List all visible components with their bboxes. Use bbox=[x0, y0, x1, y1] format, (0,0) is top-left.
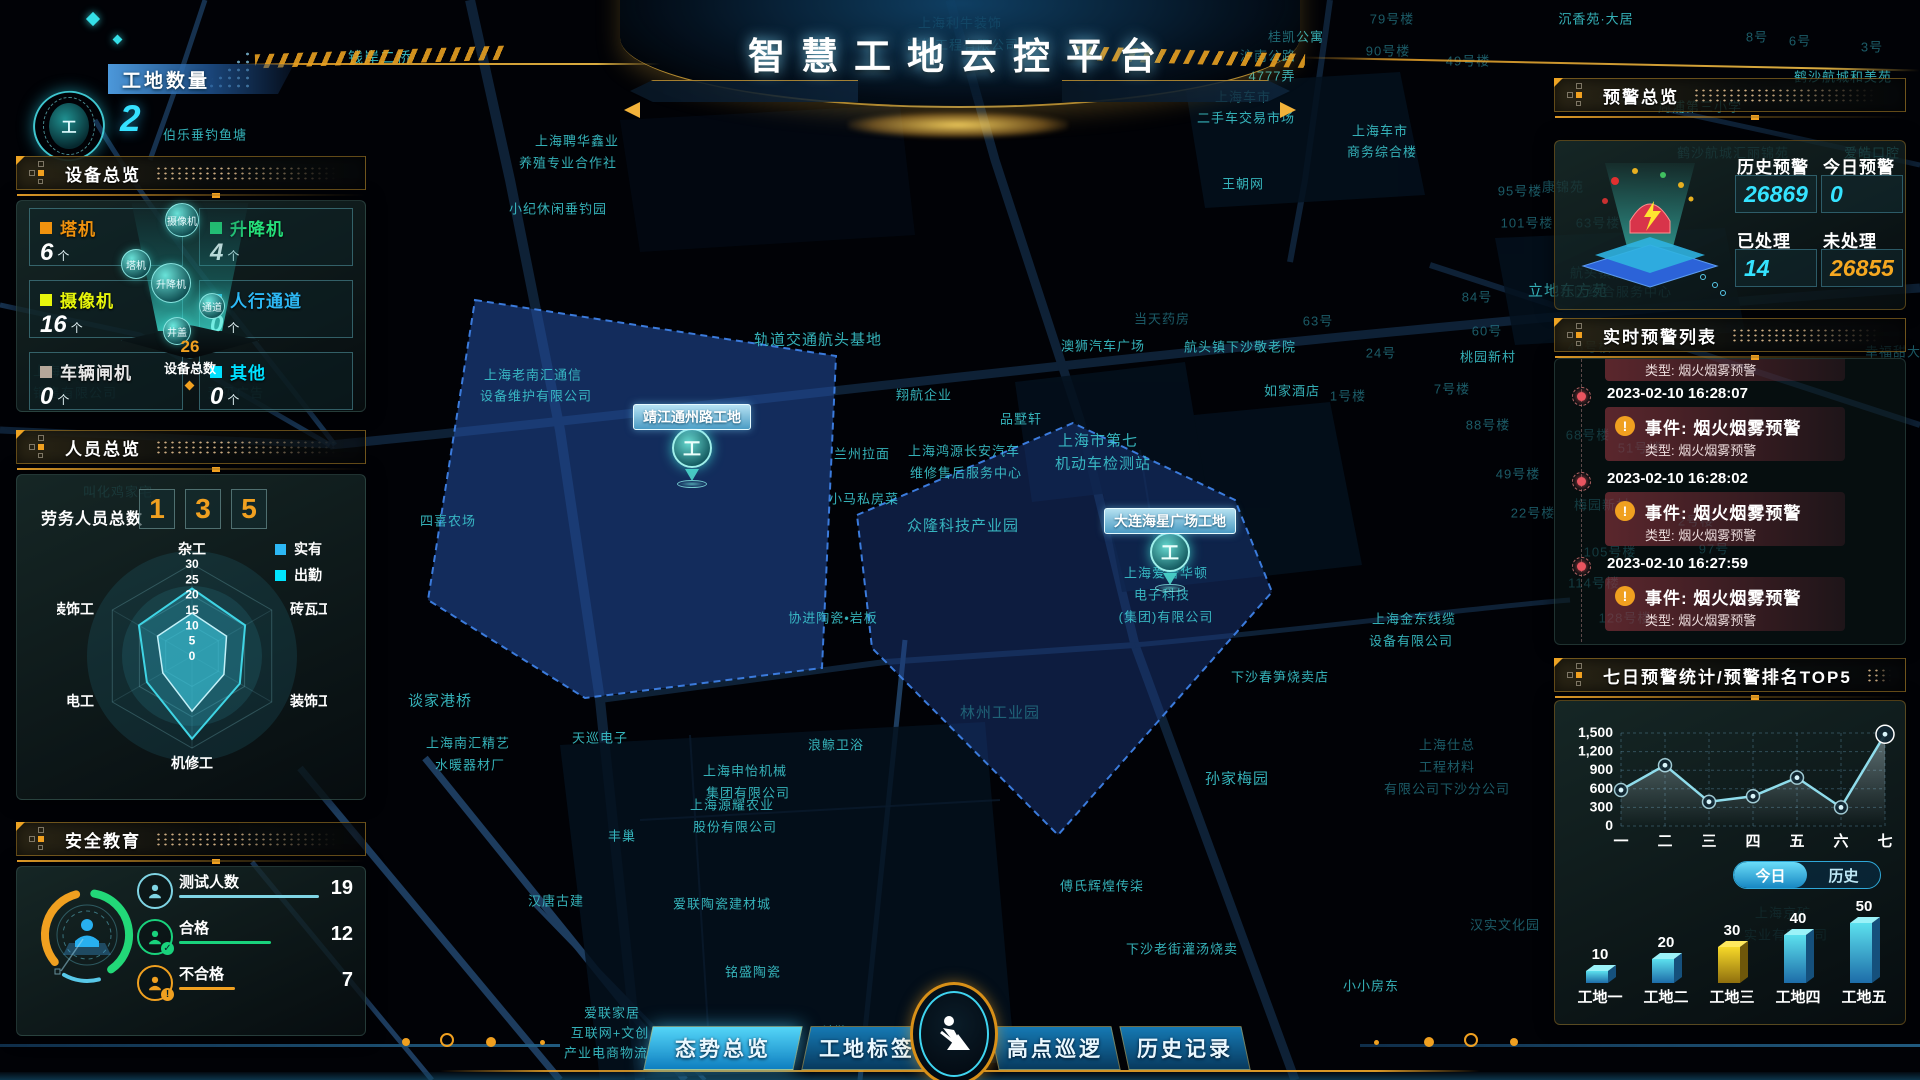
svg-text:50: 50 bbox=[1856, 898, 1873, 915]
alert-stat-value: 26855 bbox=[1821, 249, 1903, 287]
alert-list-panel: 类型: 烟火烟雾预警2023-02-10 16:28:07!事件: 烟火烟雾预警… bbox=[1554, 358, 1906, 645]
safety-row-label: 合格 bbox=[179, 917, 209, 938]
worker-emblem[interactable] bbox=[910, 982, 998, 1080]
panel-title: 七日预警统计/预警排名TOP5 bbox=[1603, 663, 1852, 688]
device-unit: 个 bbox=[227, 393, 239, 407]
toggle-today[interactable]: 今日 bbox=[1734, 862, 1807, 888]
dots-decoration-icon bbox=[1731, 328, 1893, 343]
svg-text:1,500: 1,500 bbox=[1578, 724, 1613, 740]
svg-text:四: 四 bbox=[1745, 833, 1760, 850]
safety-row-line bbox=[179, 941, 271, 944]
svg-text:电工: 电工 bbox=[66, 693, 94, 709]
panel-title: 实时预警列表 bbox=[1603, 323, 1717, 348]
device-bubble: 摄像机 bbox=[165, 203, 199, 237]
header-arrow-left-icon bbox=[624, 102, 640, 118]
device-bubble: 塔机 bbox=[121, 249, 151, 279]
svg-text:装饰工: 装饰工 bbox=[57, 601, 94, 617]
svg-text:工地二: 工地二 bbox=[1643, 988, 1688, 1006]
squares-icon bbox=[27, 163, 57, 183]
panel-header-alert-list: 实时预警列表 bbox=[1554, 318, 1906, 352]
labor-digit: 1 bbox=[139, 489, 175, 529]
alert-time: 2023-02-10 16:27:59 bbox=[1607, 555, 1748, 572]
alert-type: 类型: 烟火烟雾预警 bbox=[1645, 525, 1756, 544]
alert-type: 类型: 烟火烟雾预警 bbox=[1645, 440, 1756, 459]
alert-event: 事件: 烟火烟雾预警 bbox=[1645, 499, 1801, 524]
warning-icon: ! bbox=[1615, 416, 1635, 436]
site-label: 大连海星广场工地 bbox=[1104, 508, 1236, 534]
device-overview-panel: 塔机6个升降机4个摄像机16个人行通道0个车辆闸机0个其他0个 摄像机塔机升降机… bbox=[16, 200, 366, 412]
gold-dot bbox=[540, 1040, 545, 1045]
svg-text:600: 600 bbox=[1590, 780, 1614, 796]
tab-历史记录[interactable]: 历史记录 bbox=[1119, 1026, 1250, 1070]
svg-text:一: 一 bbox=[1613, 833, 1628, 850]
panel-title: 设备总览 bbox=[65, 161, 141, 186]
alert-stat-value: 14 bbox=[1735, 249, 1817, 287]
underline-marker bbox=[1751, 695, 1759, 700]
badge-icon: ✓ bbox=[161, 942, 174, 955]
site-polygon-1 bbox=[428, 300, 836, 698]
squares-icon bbox=[27, 437, 57, 457]
safety-row-value: 7 bbox=[305, 969, 353, 992]
person-icon: ✓ bbox=[137, 919, 173, 955]
svg-text:工地四: 工地四 bbox=[1775, 988, 1820, 1006]
svg-text:30: 30 bbox=[185, 557, 199, 571]
svg-text:工地三: 工地三 bbox=[1709, 988, 1754, 1006]
color-square-icon bbox=[40, 366, 52, 378]
alert-event: 事件: 烟火烟雾预警 bbox=[1645, 584, 1801, 609]
safety-row-value: 12 bbox=[305, 923, 353, 946]
safety-gauge-icon bbox=[31, 879, 143, 999]
panel-title: 安全教育 bbox=[65, 827, 141, 852]
device-bubble: 升降机 bbox=[151, 263, 191, 303]
svg-text:杂工: 杂工 bbox=[178, 541, 206, 557]
squares-icon bbox=[1565, 85, 1595, 105]
dots-decoration-icon bbox=[155, 440, 353, 455]
marker-tip bbox=[1163, 573, 1177, 585]
gold-dot bbox=[1374, 1040, 1379, 1045]
dots-decoration-icon bbox=[155, 832, 353, 847]
device-label: 塔机 bbox=[60, 215, 96, 240]
svg-text:装饰工: 装饰工 bbox=[289, 693, 327, 709]
svg-text:10: 10 bbox=[185, 618, 199, 632]
site-marker-pin[interactable]: 工 bbox=[672, 428, 712, 468]
timeline-dot-icon bbox=[1572, 557, 1591, 576]
gold-dot bbox=[402, 1038, 410, 1046]
marker-tip bbox=[685, 469, 699, 481]
underline-marker bbox=[212, 859, 220, 864]
alert-item-partial: 类型: 烟火烟雾预警 bbox=[1605, 358, 1845, 381]
timeline-dot-icon bbox=[1572, 472, 1591, 491]
device-unit: 个 bbox=[71, 321, 83, 335]
svg-text:300: 300 bbox=[1590, 798, 1614, 814]
alert-stat-value: 26869 bbox=[1735, 175, 1817, 213]
device-label: 人行通道 bbox=[230, 287, 302, 312]
site-label: 靖江通州路工地 bbox=[633, 404, 751, 430]
gold-dot bbox=[1510, 1038, 1518, 1046]
device-unit: 个 bbox=[57, 393, 69, 407]
tab-态势总览[interactable]: 态势总览 bbox=[643, 1026, 802, 1070]
svg-text:1,200: 1,200 bbox=[1578, 743, 1613, 759]
timeline-dot-icon bbox=[1572, 387, 1591, 406]
panel-header-weekly: 七日预警统计/预警排名TOP5 bbox=[1554, 658, 1906, 692]
squares-icon bbox=[1565, 665, 1595, 685]
weekly-stats-panel: 1,5001,2009006003000一二三四五六七 今日历史 10工地一20… bbox=[1554, 700, 1906, 1025]
svg-text:20: 20 bbox=[1658, 934, 1675, 951]
siren-icon bbox=[1575, 159, 1727, 299]
safety-row-line bbox=[179, 987, 235, 990]
svg-text:机修工: 机修工 bbox=[171, 755, 213, 771]
gold-ring bbox=[440, 1033, 454, 1047]
svg-text:30: 30 bbox=[1724, 922, 1741, 939]
alert-item[interactable]: !事件: 烟火烟雾预警类型: 烟火烟雾预警 bbox=[1605, 577, 1845, 631]
device-total-value: 26 bbox=[117, 337, 263, 357]
underline-marker bbox=[212, 467, 220, 472]
svg-text:工地五: 工地五 bbox=[1841, 988, 1886, 1006]
svg-text:五: 五 bbox=[1789, 833, 1804, 850]
person-icon bbox=[137, 873, 173, 909]
device-bubble: 通道 bbox=[199, 293, 225, 319]
svg-text:900: 900 bbox=[1590, 761, 1614, 777]
color-square-icon bbox=[40, 222, 52, 234]
today-history-toggle: 今日历史 bbox=[1733, 861, 1881, 889]
panel-title: 预警总览 bbox=[1603, 83, 1679, 108]
panel-header-safety: 安全教育 bbox=[16, 822, 366, 856]
toggle-history[interactable]: 历史 bbox=[1807, 862, 1880, 888]
underline-marker bbox=[1751, 115, 1759, 120]
color-square-icon bbox=[40, 294, 52, 306]
labor-digit: 3 bbox=[185, 489, 221, 529]
device-label: 摄像机 bbox=[60, 287, 114, 312]
alert-time: 2023-02-10 16:28:07 bbox=[1607, 385, 1748, 402]
svg-text:工地一: 工地一 bbox=[1577, 988, 1622, 1006]
svg-text:砖瓦工: 砖瓦工 bbox=[290, 601, 327, 617]
worker-icon bbox=[919, 991, 989, 1077]
safety-row-label: 测试人数 bbox=[179, 871, 239, 892]
header-glow bbox=[848, 112, 1068, 138]
header-wing-left bbox=[630, 80, 858, 102]
labor-total-label: 劳务人员总数 bbox=[41, 505, 143, 529]
safety-education-panel: 测试人数19✓合格12!不合格7 bbox=[16, 866, 366, 1036]
header-wing-right bbox=[1062, 80, 1290, 102]
alert-item[interactable]: !事件: 烟火烟雾预警类型: 烟火烟雾预警 bbox=[1605, 492, 1845, 546]
panel-header-device: 设备总览 bbox=[16, 156, 366, 190]
svg-text:0: 0 bbox=[189, 649, 196, 663]
svg-text:25: 25 bbox=[185, 572, 199, 586]
device-total-label: 设备总数 bbox=[117, 358, 263, 377]
svg-text:三: 三 bbox=[1701, 833, 1716, 850]
dots-decoration-icon bbox=[1693, 88, 1893, 103]
device-unit: 个 bbox=[227, 321, 239, 335]
safety-row-value: 19 bbox=[305, 877, 353, 900]
header-arrow-right-icon bbox=[1280, 102, 1296, 118]
dots-decoration-icon bbox=[155, 166, 353, 181]
tab-高点巡逻[interactable]: 高点巡逻 bbox=[989, 1026, 1120, 1070]
bottom-line-right bbox=[1360, 1044, 1920, 1047]
panel-title: 人员总览 bbox=[65, 435, 141, 460]
gold-dot bbox=[1424, 1037, 1434, 1047]
badge-icon: ! bbox=[161, 988, 174, 1001]
safety-row-label: 不合格 bbox=[179, 963, 224, 984]
marker-base bbox=[1155, 584, 1185, 592]
svg-text:七: 七 bbox=[1877, 833, 1892, 850]
squares-icon bbox=[27, 829, 57, 849]
dots-decoration-icon bbox=[1866, 668, 1893, 683]
safety-row-line bbox=[179, 895, 319, 898]
personnel-radar-chart: 302520151050杂工砖瓦工装饰工机修工电工装饰工 bbox=[57, 531, 327, 781]
labor-digit: 5 bbox=[231, 489, 267, 529]
svg-text:六: 六 bbox=[1833, 832, 1848, 850]
gold-ring bbox=[1464, 1033, 1478, 1047]
panel-header-personnel: 人员总览 bbox=[16, 430, 366, 464]
svg-text:0: 0 bbox=[1605, 817, 1613, 833]
alert-stat-value: 0 bbox=[1821, 175, 1903, 213]
bottom-line-left bbox=[0, 1044, 560, 1047]
warning-icon: ! bbox=[1615, 501, 1635, 521]
svg-text:二: 二 bbox=[1657, 833, 1672, 850]
tab-label: 工地标签 bbox=[819, 1033, 915, 1063]
svg-text:20: 20 bbox=[185, 588, 199, 602]
diamond-icon bbox=[185, 381, 195, 391]
person-icon: ! bbox=[137, 965, 173, 1001]
page-title: 智慧工地云控平台 bbox=[0, 26, 1920, 80]
weekly-line-chart: 1,5001,2009006003000一二三四五六七 bbox=[1563, 711, 1903, 861]
svg-text:5: 5 bbox=[189, 634, 196, 648]
alert-event: 事件: 烟火烟雾预警 bbox=[1645, 414, 1801, 439]
tab-label: 历史记录 bbox=[1137, 1033, 1233, 1063]
device-count: 0个 bbox=[210, 384, 342, 413]
warning-icon: ! bbox=[1615, 586, 1635, 606]
tab-label: 态势总览 bbox=[675, 1033, 771, 1063]
panel-header-alert-overview: 预警总览 bbox=[1554, 78, 1906, 112]
marker-base bbox=[677, 480, 707, 488]
alert-type: 类型: 烟火烟雾预警 bbox=[1645, 610, 1756, 629]
device-count: 0个 bbox=[40, 384, 172, 413]
svg-text:15: 15 bbox=[185, 603, 199, 617]
site-count-value: 2 bbox=[120, 98, 141, 140]
underline-marker bbox=[212, 193, 220, 198]
svg-text:10: 10 bbox=[1592, 946, 1609, 963]
site-marker-pin[interactable]: 工 bbox=[1150, 532, 1190, 572]
tab-label: 高点巡逻 bbox=[1007, 1033, 1103, 1063]
personnel-overview-panel: 劳务人员总数 135 实有出勤 302520151050杂工砖瓦工装饰工机修工电… bbox=[16, 474, 366, 800]
device-unit: 个 bbox=[57, 249, 69, 263]
alert-item[interactable]: !事件: 烟火烟雾预警类型: 烟火烟雾预警 bbox=[1605, 407, 1845, 461]
top5-bar-chart: 10工地一20工地二30工地三40工地四50工地五 bbox=[1555, 897, 1907, 1017]
alert-type: 类型: 烟火烟雾预警 bbox=[1645, 360, 1756, 379]
smart-site-dashboard: 上海利牛装饰装修工程有限公司钱岸二桥桂凯公寓沪南公路4777弄79号楼90号楼4… bbox=[0, 0, 1920, 1080]
alert-overview-panel: 历史预警26869今日预警0已处理14未处理26855 bbox=[1554, 140, 1906, 310]
alert-time: 2023-02-10 16:28:02 bbox=[1607, 470, 1748, 487]
gold-dot bbox=[486, 1037, 496, 1047]
underline-marker bbox=[1751, 355, 1759, 360]
squares-icon bbox=[1565, 325, 1595, 345]
svg-text:40: 40 bbox=[1790, 910, 1807, 927]
